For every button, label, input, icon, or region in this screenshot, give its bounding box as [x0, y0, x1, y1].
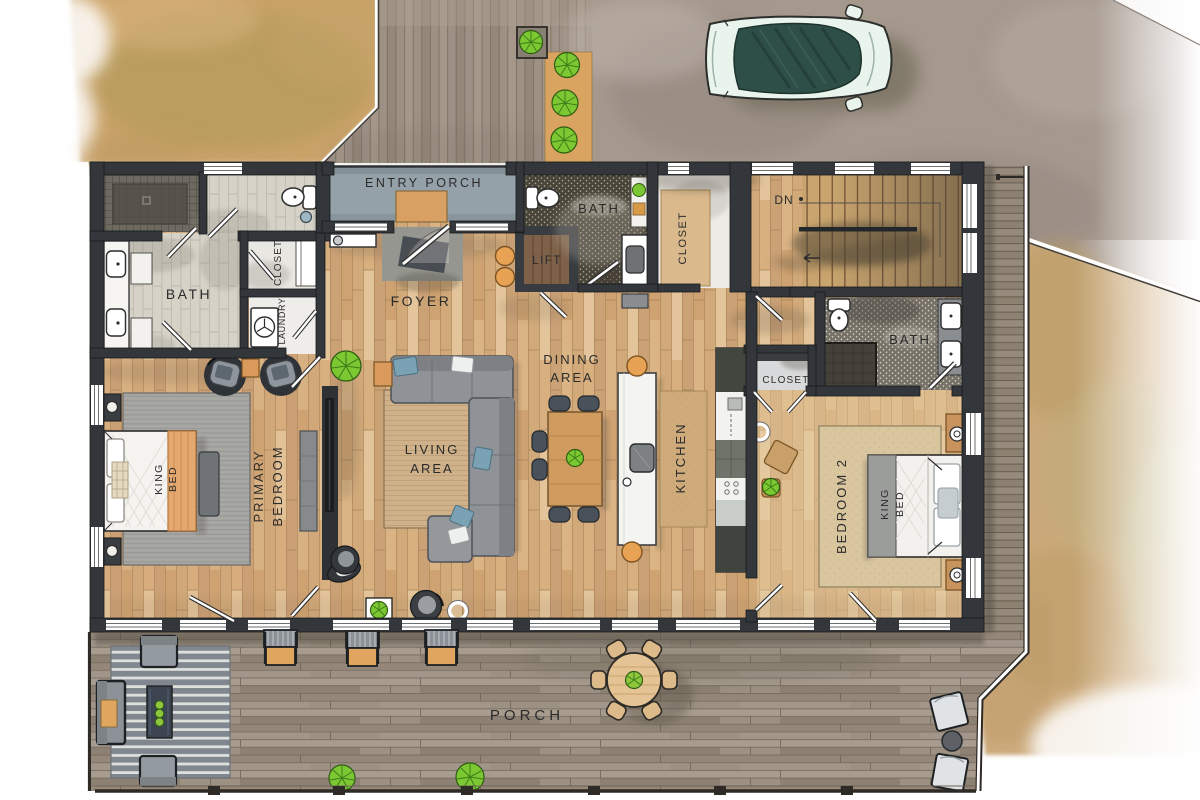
svg-text:PORCH: PORCH: [490, 707, 564, 724]
svg-text:DN: DN: [774, 193, 793, 207]
svg-text:LIVING: LIVING: [405, 442, 460, 457]
svg-text:PRIMARY: PRIMARY: [251, 450, 266, 523]
svg-text:BATH: BATH: [578, 201, 620, 216]
svg-text:ENTRY PORCH: ENTRY PORCH: [365, 176, 483, 190]
svg-text:LIFT: LIFT: [532, 255, 562, 267]
svg-text:KING: KING: [879, 488, 891, 520]
svg-text:CLOSET: CLOSET: [677, 211, 689, 264]
svg-text:AREA: AREA: [410, 461, 453, 476]
svg-text:FOYER: FOYER: [391, 293, 452, 309]
svg-text:BEDROOM 2: BEDROOM 2: [834, 458, 849, 554]
svg-text:BED: BED: [894, 491, 906, 517]
svg-text:BATH: BATH: [166, 286, 212, 302]
svg-text:BATH: BATH: [889, 332, 931, 347]
svg-text:AREA: AREA: [550, 370, 593, 385]
svg-text:LAUNDRY: LAUNDRY: [277, 297, 287, 344]
svg-text:BED: BED: [167, 466, 179, 492]
svg-text:KITCHEN: KITCHEN: [673, 422, 688, 493]
svg-text:DINING: DINING: [543, 352, 601, 367]
svg-text:KING: KING: [153, 463, 165, 495]
svg-text:CLOSET: CLOSET: [273, 240, 284, 286]
svg-text:BEDROOM: BEDROOM: [270, 445, 285, 526]
svg-text:CLOSET: CLOSET: [762, 375, 809, 386]
